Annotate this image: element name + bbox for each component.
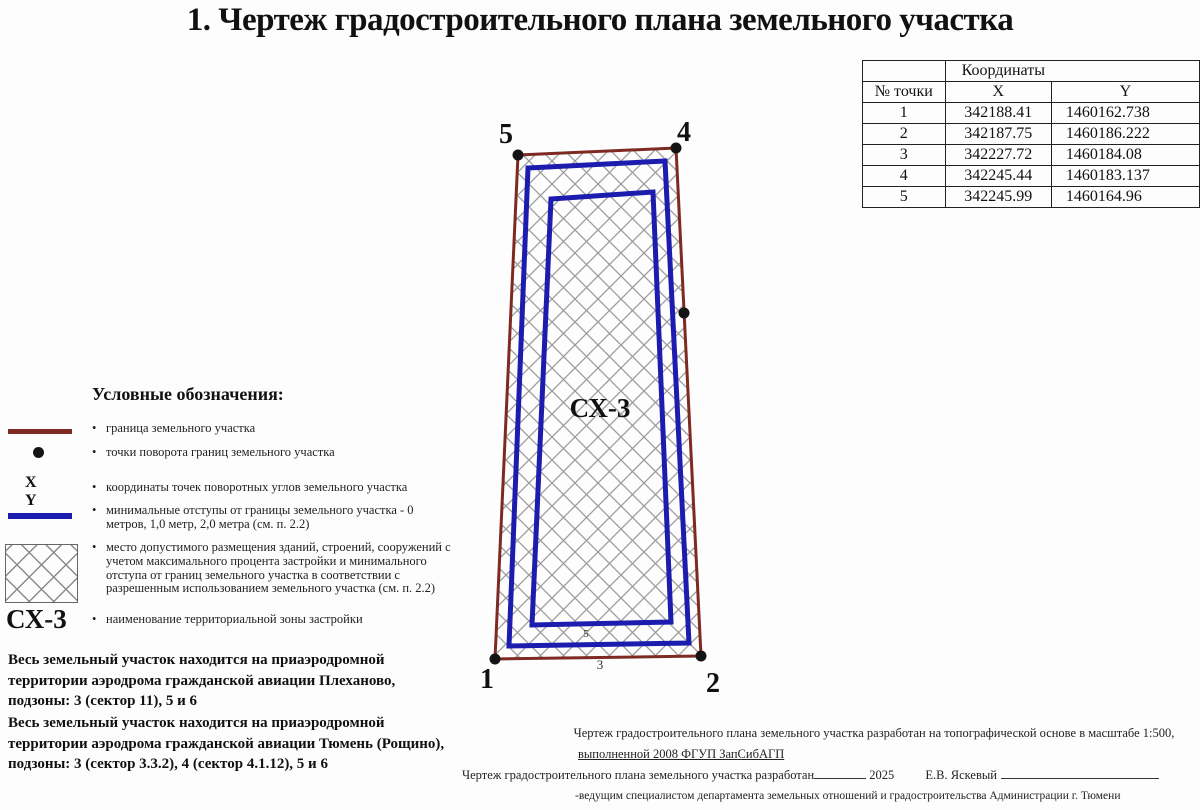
point-dot-3 bbox=[679, 308, 690, 319]
footer-year: 2025 bbox=[869, 768, 894, 782]
legend-item-offsets: минимальные отступы от границы земельног… bbox=[92, 504, 441, 532]
vertex-label-2: 2 bbox=[706, 668, 720, 699]
x-value: 342245.99 bbox=[945, 187, 1051, 208]
coordinates-table: Координаты № точки X Y 1 342188.41 14601… bbox=[862, 60, 1200, 208]
table-group-header-row: Координаты bbox=[863, 61, 1200, 82]
col-header-point: № точки bbox=[863, 82, 946, 103]
table-row: 2 342187.75 1460186.222 bbox=[863, 124, 1200, 145]
hatch-area-swatch bbox=[5, 544, 78, 603]
x-value: 342227.72 bbox=[945, 145, 1051, 166]
empty-cell bbox=[863, 61, 946, 82]
dim-label-outer: 3 bbox=[597, 657, 604, 672]
y-value: 1460186.222 bbox=[1051, 124, 1199, 145]
turn-point-dot-swatch bbox=[33, 447, 44, 458]
legend-item-zone-name: наименование территориальной зоны застро… bbox=[92, 613, 451, 627]
table-header-row: № точки X Y bbox=[863, 82, 1200, 103]
boundary-line-swatch bbox=[8, 429, 72, 434]
table-row: 3 342227.72 1460184.08 bbox=[863, 145, 1200, 166]
footer-developed-text: Чертеж градостроительного плана земельно… bbox=[462, 768, 814, 782]
point-number: 2 bbox=[863, 124, 946, 145]
legend-item-buildable-area: место допустимого размещения зданий, стр… bbox=[92, 541, 458, 596]
col-header-x: X bbox=[945, 82, 1051, 103]
note-roschino: Весь земельный участок находится на приа… bbox=[8, 713, 463, 775]
y-value: 1460162.738 bbox=[1051, 103, 1199, 124]
note-plekhanovo: Весь земельный участок находится на приа… bbox=[8, 650, 423, 712]
y-value: 1460184.08 bbox=[1051, 145, 1199, 166]
point-number: 4 bbox=[863, 166, 946, 187]
x-value: 342245.44 bbox=[945, 166, 1051, 187]
footer-author-name: Е.В. Яскевый bbox=[925, 768, 997, 782]
y-value: 1460183.137 bbox=[1051, 166, 1199, 187]
legend-item-boundary: граница земельного участка bbox=[92, 422, 451, 436]
x-symbol: X bbox=[25, 474, 37, 492]
x-value: 342187.75 bbox=[945, 124, 1051, 145]
signature-blank bbox=[1001, 776, 1159, 779]
footer-signature-line: Чертеж градостроительного плана земельно… bbox=[462, 768, 1159, 783]
zone-name-swatch: СХ-3 bbox=[6, 604, 67, 635]
footer-basis-line: Чертеж градостроительного плана земельно… bbox=[550, 726, 1198, 741]
table-row: 5 342245.99 1460164.96 bbox=[863, 187, 1200, 208]
point-dot-5 bbox=[513, 150, 524, 161]
point-number: 5 bbox=[863, 187, 946, 208]
y-value: 1460164.96 bbox=[1051, 187, 1199, 208]
table-row: 4 342245.44 1460183.137 bbox=[863, 166, 1200, 187]
footer-performed-by-line: выполненной 2008 ФГУП ЗапСибАГП bbox=[578, 747, 784, 762]
vertex-label-4: 4 bbox=[677, 117, 691, 148]
zone-label: СХ-3 bbox=[570, 393, 631, 423]
document-page: 1. Чертеж градостроительного плана земел… bbox=[0, 0, 1200, 810]
col-header-y: Y bbox=[1051, 82, 1199, 103]
page-title: 1. Чертеж градостроительного плана земел… bbox=[0, 2, 1200, 39]
signature-blank bbox=[814, 776, 866, 779]
land-plot-drawing: 5 4 1 2 СХ-3 5 3 bbox=[420, 95, 780, 710]
vertex-label-1: 1 bbox=[480, 664, 494, 695]
point-dot-2 bbox=[696, 651, 707, 662]
table-row: 1 342188.41 1460162.738 bbox=[863, 103, 1200, 124]
vertex-label-5: 5 bbox=[499, 119, 513, 150]
dim-label-inner: 5 bbox=[583, 628, 589, 640]
xy-coordinates-swatch: X Y bbox=[25, 474, 37, 511]
x-value: 342188.41 bbox=[945, 103, 1051, 124]
legend-item-turn-points: точки поворота границ земельного участка bbox=[92, 446, 451, 460]
point-dot-1 bbox=[490, 654, 501, 665]
legend-heading: Условные обозначения: bbox=[92, 384, 284, 405]
y-symbol: Y bbox=[25, 492, 37, 510]
offset-line-swatch bbox=[8, 513, 72, 519]
footer-position-line: -ведущим специалистом департамента земел… bbox=[575, 790, 1120, 802]
legend-item-coordinates: координаты точек поворотных углов земель… bbox=[92, 481, 451, 495]
coordinates-group-header: Координаты bbox=[945, 61, 1199, 82]
point-number: 3 bbox=[863, 145, 946, 166]
point-number: 1 bbox=[863, 103, 946, 124]
